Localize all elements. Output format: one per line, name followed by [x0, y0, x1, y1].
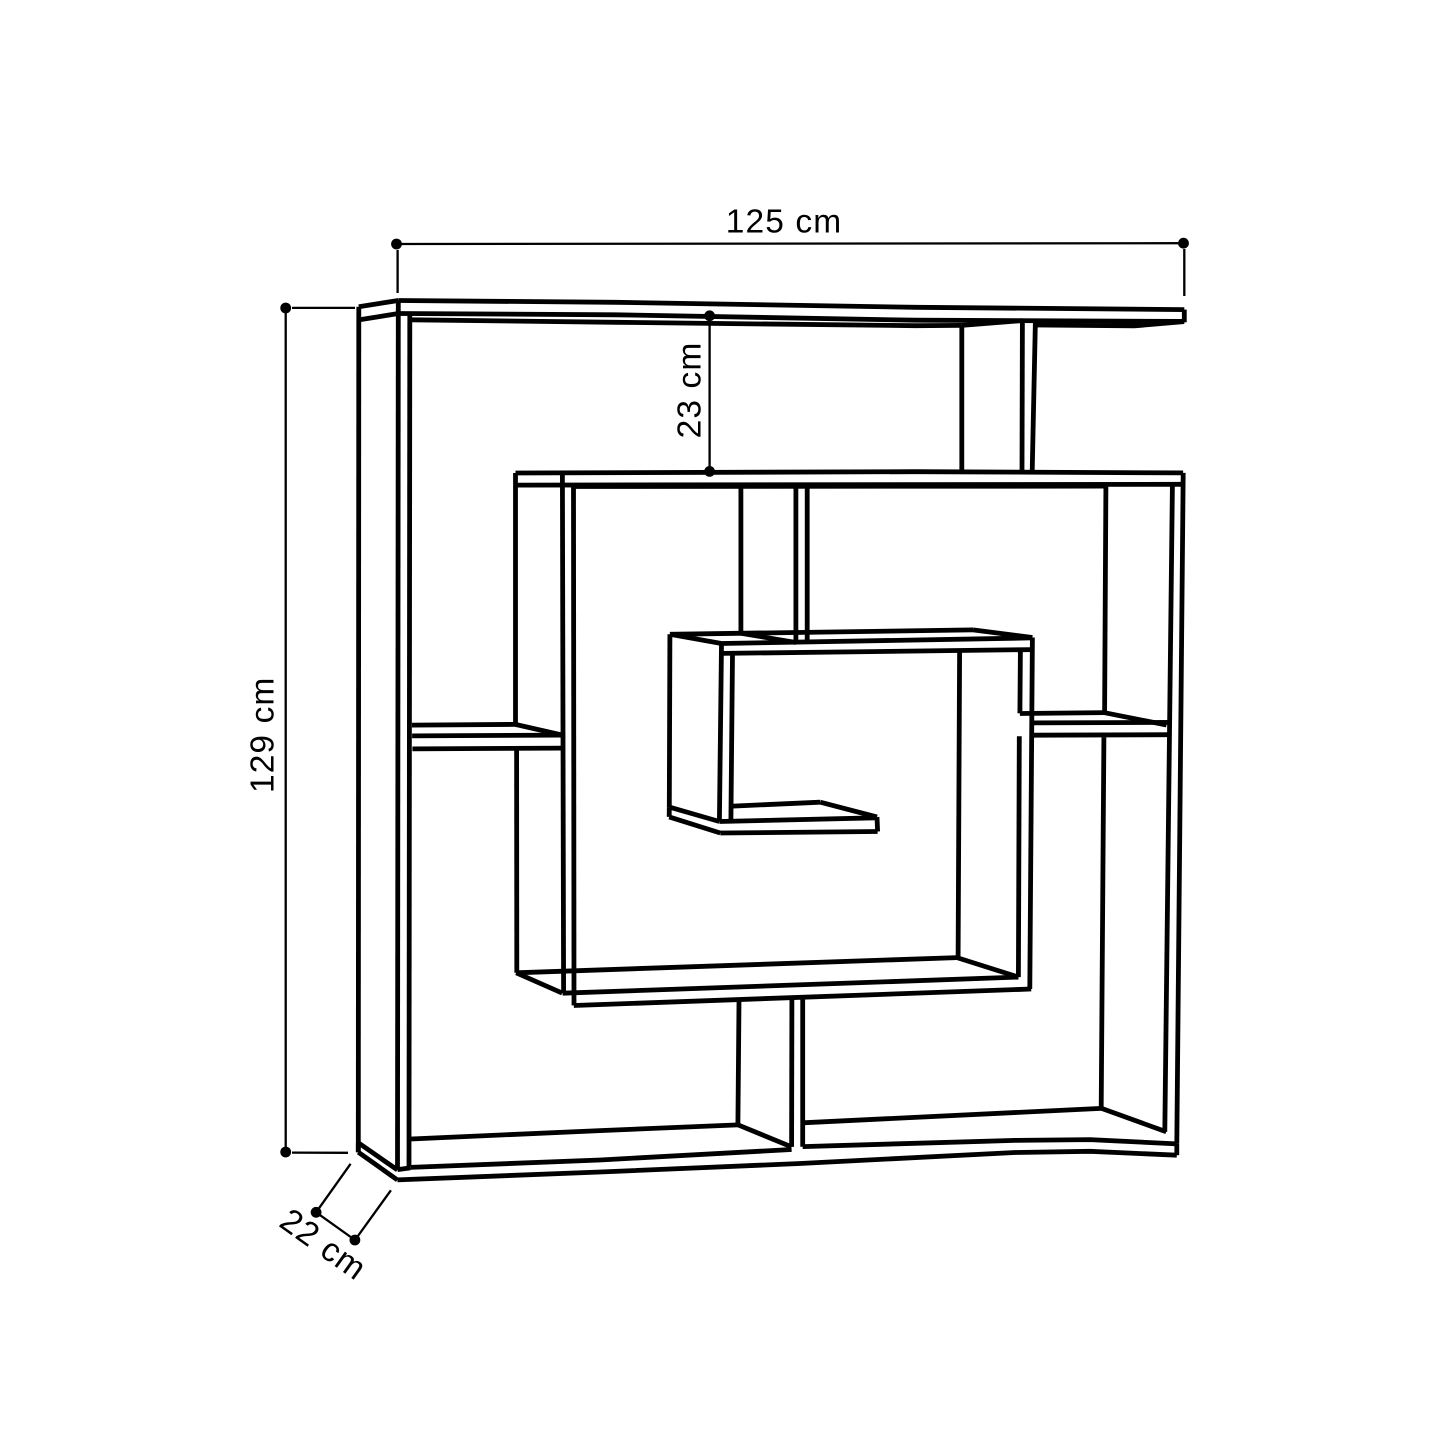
svg-text:129 cm: 129 cm — [245, 677, 282, 793]
svg-text:125 cm: 125 cm — [726, 204, 842, 241]
svg-text:23 cm: 23 cm — [672, 342, 709, 439]
